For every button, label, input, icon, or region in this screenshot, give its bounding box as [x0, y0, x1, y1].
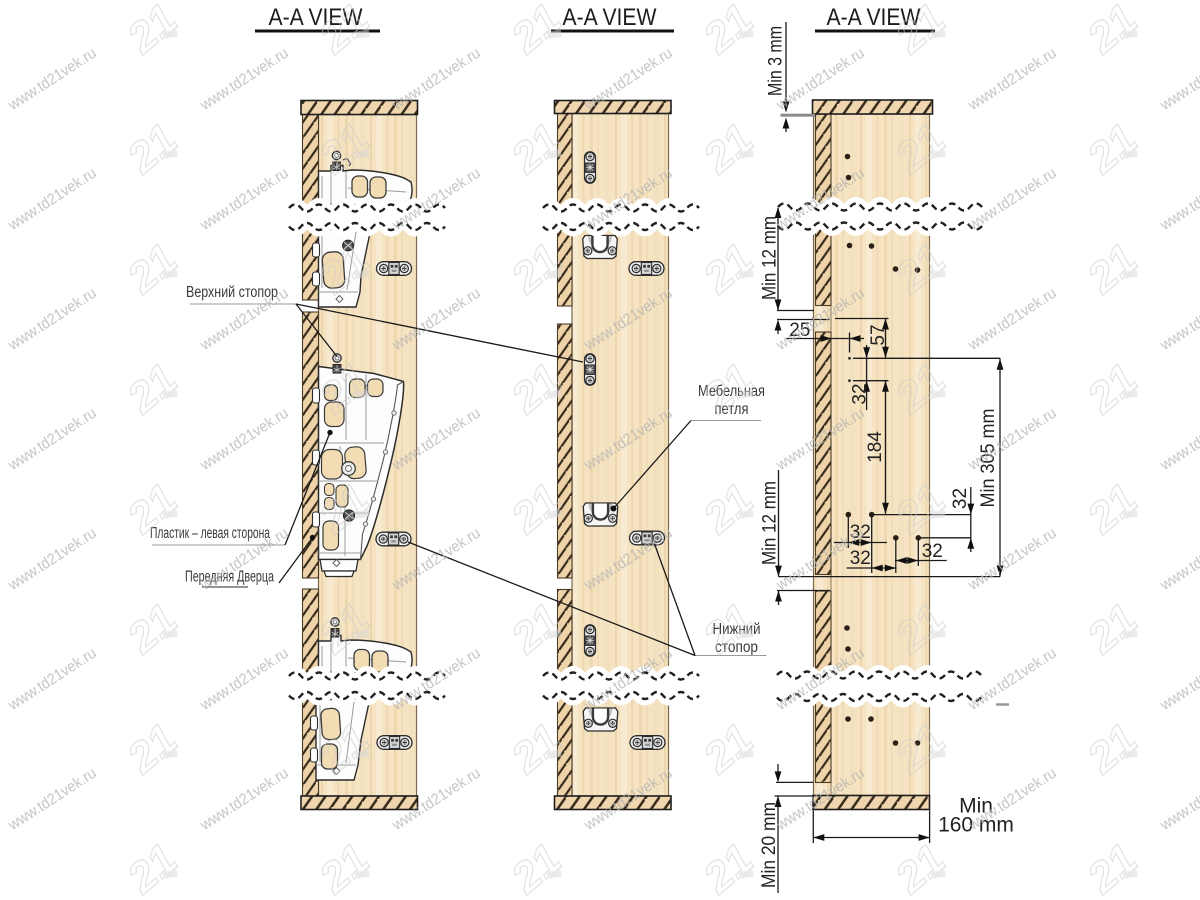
svg-text:Пластик – левая сторона: Пластик – левая сторона — [150, 525, 270, 542]
svg-text:32: 32 — [950, 488, 971, 509]
svg-text:Min 12 mm: Min 12 mm — [760, 481, 781, 565]
svg-text:57: 57 — [868, 324, 889, 345]
svg-text:A-A VIEW: A-A VIEW — [563, 4, 658, 31]
svg-text:Min 12 mm: Min 12 mm — [760, 216, 781, 300]
svg-text:Min 3 mm: Min 3 mm — [766, 26, 787, 96]
svg-text:32: 32 — [922, 541, 943, 562]
svg-text:32: 32 — [850, 383, 871, 404]
svg-text:32: 32 — [850, 548, 871, 569]
svg-text:Min 20 mm: Min 20 mm — [759, 802, 780, 888]
svg-text:184: 184 — [865, 431, 886, 463]
